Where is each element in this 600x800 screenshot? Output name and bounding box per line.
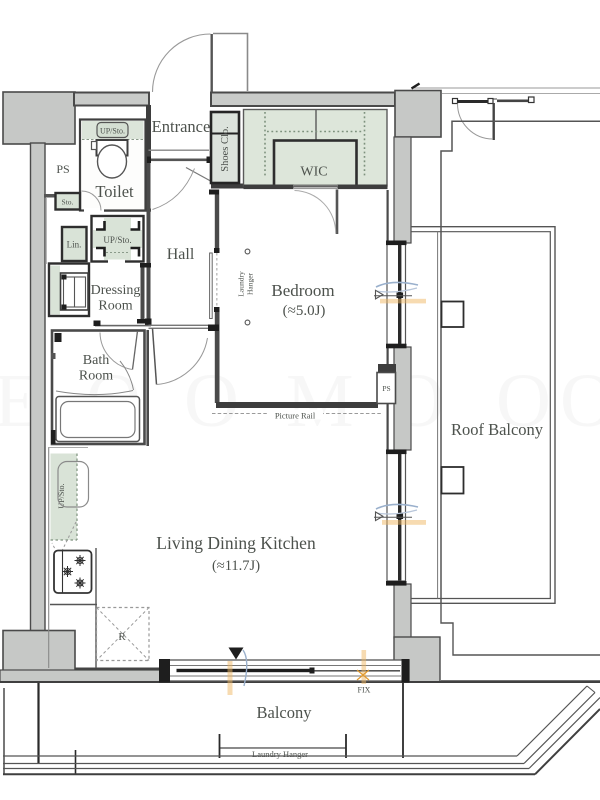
svg-text:UP/Sto.: UP/Sto. bbox=[100, 127, 125, 136]
svg-text:O: O bbox=[560, 359, 600, 443]
svg-text:Hall: Hall bbox=[167, 246, 195, 263]
svg-text:FIX: FIX bbox=[358, 686, 371, 695]
svg-text:Laundry: Laundry bbox=[237, 271, 246, 297]
svg-text:Balcony: Balcony bbox=[257, 703, 313, 722]
svg-text:(≈11.7J): (≈11.7J) bbox=[212, 558, 260, 574]
svg-text:Laundry Hanger: Laundry Hanger bbox=[252, 749, 308, 759]
svg-text:O: O bbox=[184, 359, 239, 443]
svg-text:M: M bbox=[286, 359, 354, 443]
svg-text:Bedroom: Bedroom bbox=[271, 281, 334, 300]
svg-text:Entrance: Entrance bbox=[152, 117, 211, 136]
svg-text:Living Dining Kitchen: Living Dining Kitchen bbox=[156, 533, 316, 553]
svg-text:PS: PS bbox=[382, 384, 390, 393]
svg-text:Room: Room bbox=[79, 369, 113, 384]
svg-text:Lin.: Lin. bbox=[67, 240, 82, 250]
svg-text:Bath: Bath bbox=[83, 353, 109, 368]
svg-text:Dressing: Dressing bbox=[91, 283, 141, 298]
svg-text:Sto.: Sto. bbox=[62, 198, 74, 207]
svg-text:WIC: WIC bbox=[300, 165, 327, 180]
svg-text:Toilet: Toilet bbox=[95, 182, 134, 201]
svg-text:R: R bbox=[118, 631, 126, 643]
svg-text:UP/Sto.: UP/Sto. bbox=[103, 235, 131, 245]
svg-text:PS: PS bbox=[56, 162, 69, 176]
svg-text:Room: Room bbox=[98, 299, 132, 314]
svg-text:Shoes Clo.: Shoes Clo. bbox=[220, 126, 231, 172]
svg-text:Roof Balcony: Roof Balcony bbox=[451, 420, 544, 439]
svg-text:Hanger: Hanger bbox=[246, 272, 255, 295]
svg-text:(≈5.0J): (≈5.0J) bbox=[283, 303, 326, 319]
svg-text:Picture Rail: Picture Rail bbox=[275, 411, 316, 421]
